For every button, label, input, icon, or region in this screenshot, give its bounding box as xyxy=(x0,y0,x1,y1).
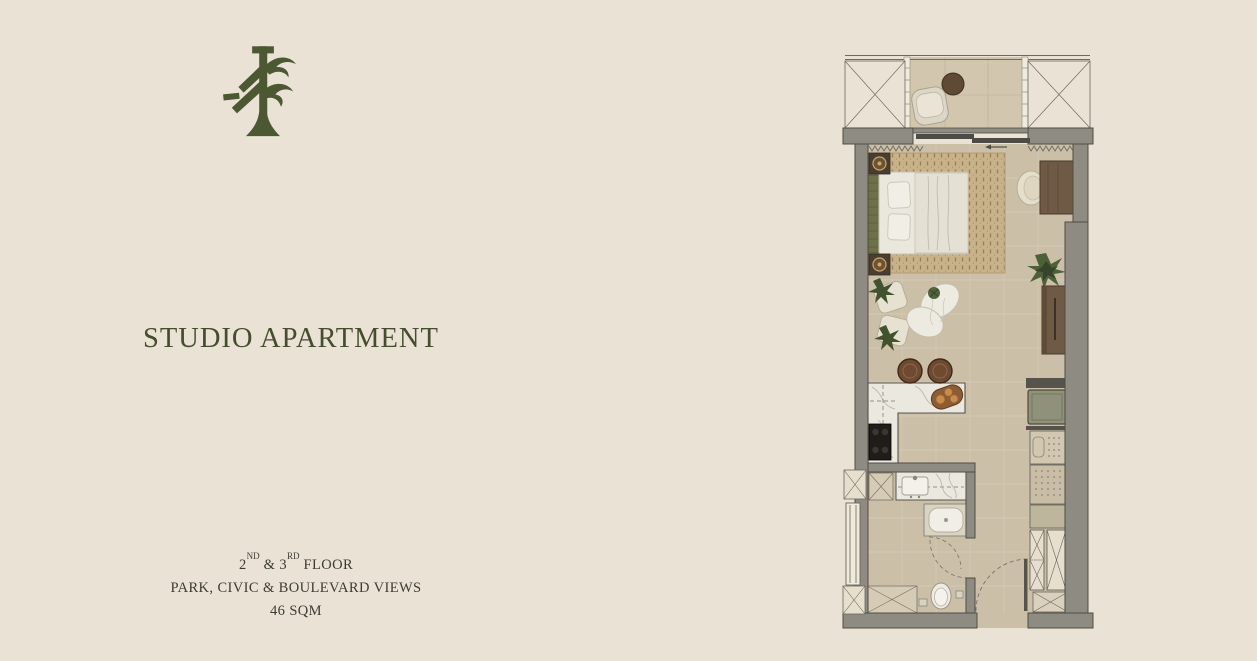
shaft-hatched-bath-bottom xyxy=(867,586,917,613)
bed-headboard xyxy=(868,175,879,253)
double-bed xyxy=(868,172,968,254)
service-shaft-hatched-right xyxy=(1028,61,1090,128)
page: STUDIO APARTMENT 2ND & 3RD FLOOR PARK, C… xyxy=(0,0,1257,661)
cooktop xyxy=(869,424,891,460)
duct-shaft xyxy=(846,503,860,585)
pantry-cabinet-c xyxy=(1030,505,1066,528)
entry-door-leaf xyxy=(1024,559,1028,611)
bed-pillow xyxy=(888,214,911,241)
wardrobe xyxy=(1030,530,1066,590)
bed-duvet xyxy=(915,173,968,253)
tall-cabinet xyxy=(1042,286,1066,354)
balcony-table xyxy=(942,73,964,95)
cabinet-frame xyxy=(1026,378,1068,388)
pantry-cabinet-b xyxy=(1030,465,1066,504)
balcony-chair xyxy=(910,85,950,126)
service-shaft-hatched-left xyxy=(845,61,905,128)
kitchen-tall-units xyxy=(1026,378,1068,528)
pantry-cabinet-a xyxy=(1030,431,1066,464)
nightstand-top xyxy=(869,153,890,174)
shower xyxy=(924,504,968,536)
studio-apartment-floor-plan xyxy=(0,0,1257,661)
bar-stool xyxy=(898,359,922,383)
shaft-hatched-left-bottom xyxy=(843,586,865,614)
shaft-hatched-bath-top xyxy=(869,473,893,500)
shaft-hatched-left-mid xyxy=(844,470,866,499)
bed-pillow xyxy=(887,181,910,208)
nightstand-bottom xyxy=(869,254,890,275)
bathroom-vanity xyxy=(896,472,966,500)
desk xyxy=(1040,161,1073,214)
sliding-balcony-door xyxy=(913,128,1030,143)
bar-stool xyxy=(928,359,952,383)
refrigerator xyxy=(1028,390,1066,424)
shaft-hatched-bottom-right xyxy=(1033,592,1068,612)
